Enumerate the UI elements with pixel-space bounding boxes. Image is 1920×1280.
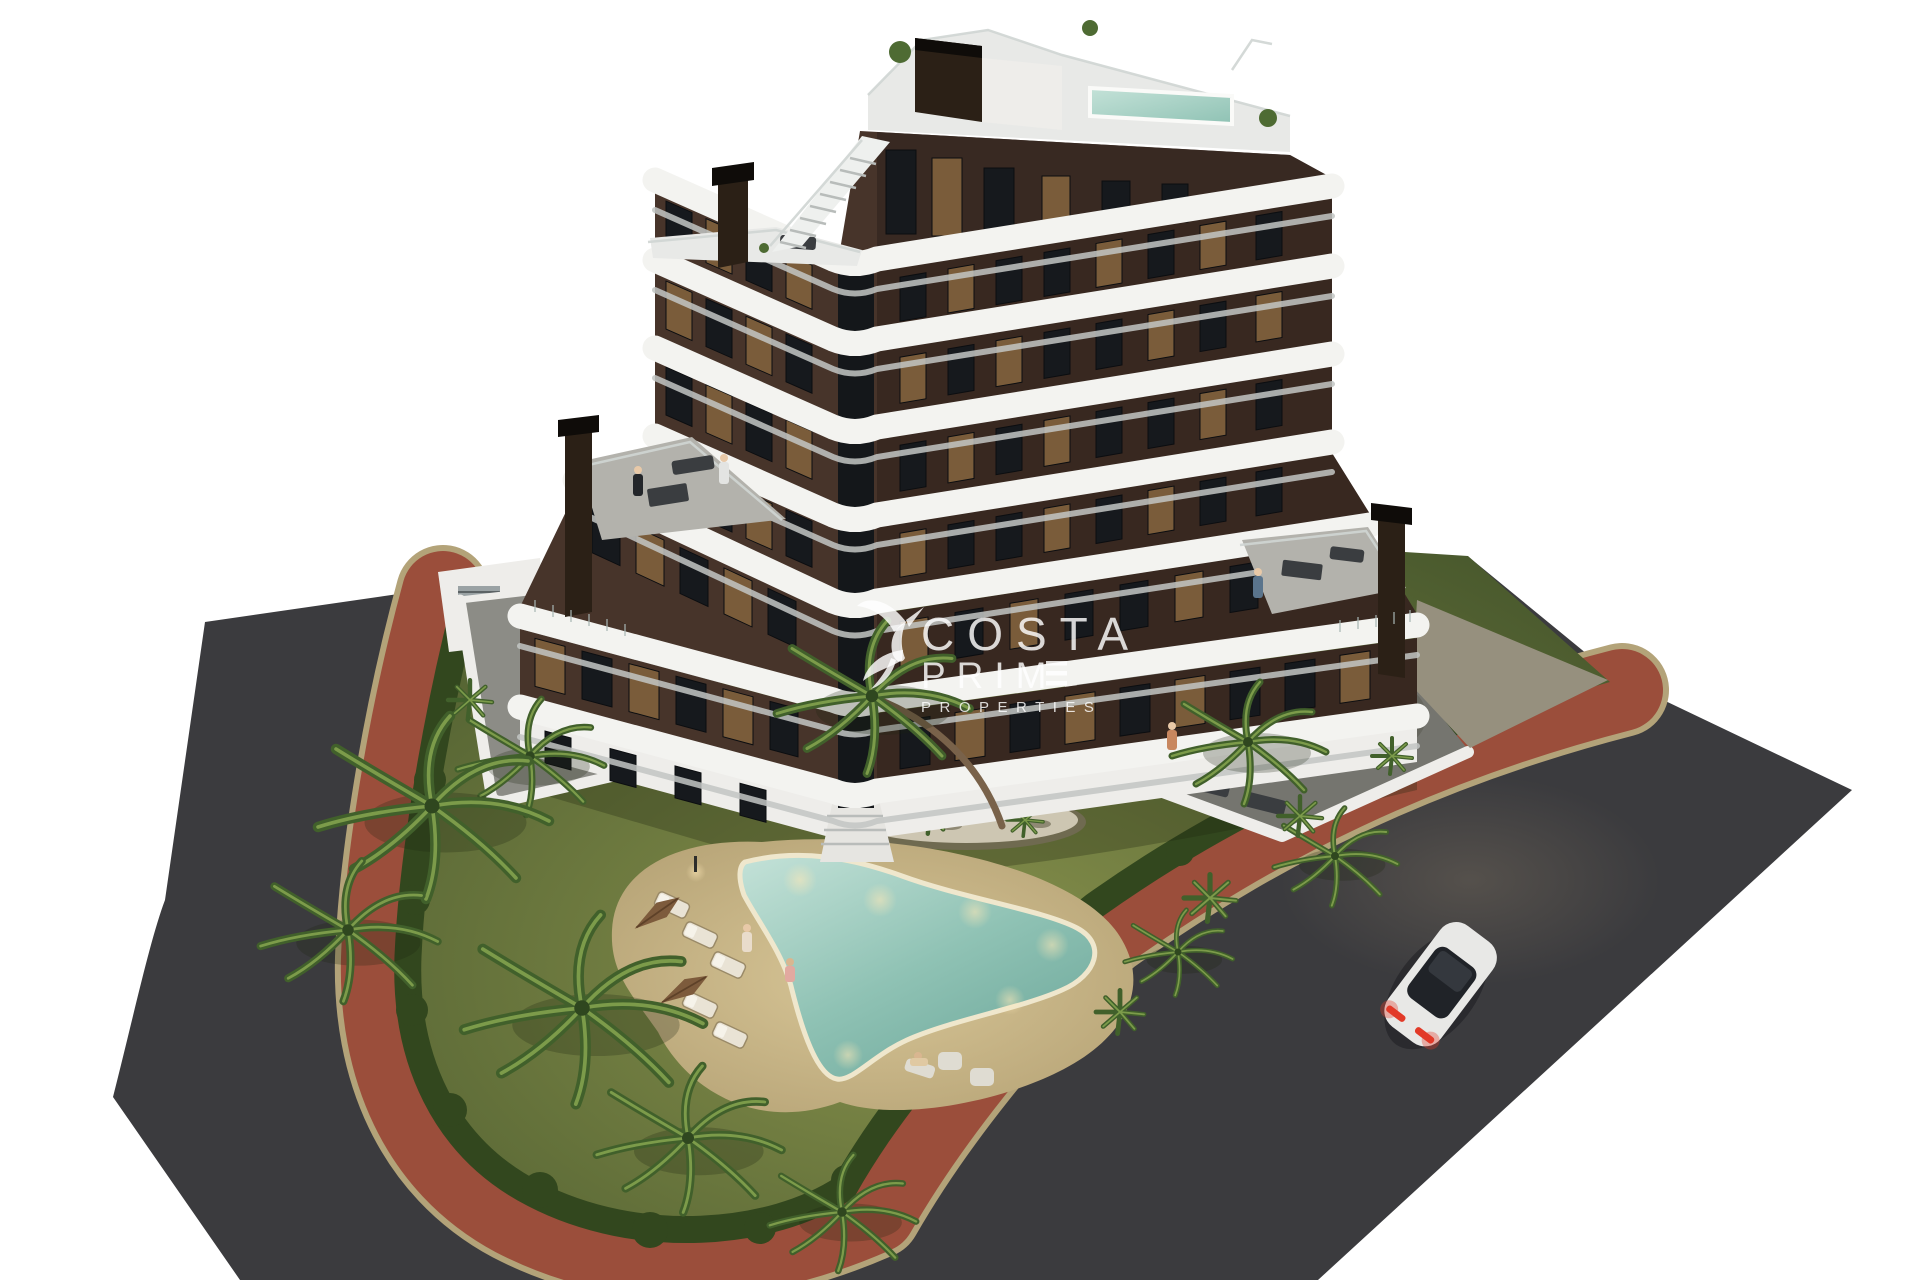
pent-chimney (712, 162, 754, 268)
brand-text-properties: PROPERTIES (921, 699, 1102, 716)
rooftop-pool (1090, 88, 1232, 124)
brand-text-costa: COSTA (921, 608, 1141, 660)
render-canvas: COSTA PRIM PROPERTIES (0, 0, 1920, 1280)
brand-text-prime: PRIM (921, 655, 1058, 696)
brand-stylized-e (1046, 661, 1067, 686)
roof-plant (1082, 20, 1098, 36)
person (719, 454, 729, 484)
property-render: COSTA PRIM PROPERTIES (0, 0, 1920, 1280)
person (1253, 568, 1263, 598)
roof-deck (868, 20, 1290, 152)
person (633, 466, 643, 496)
